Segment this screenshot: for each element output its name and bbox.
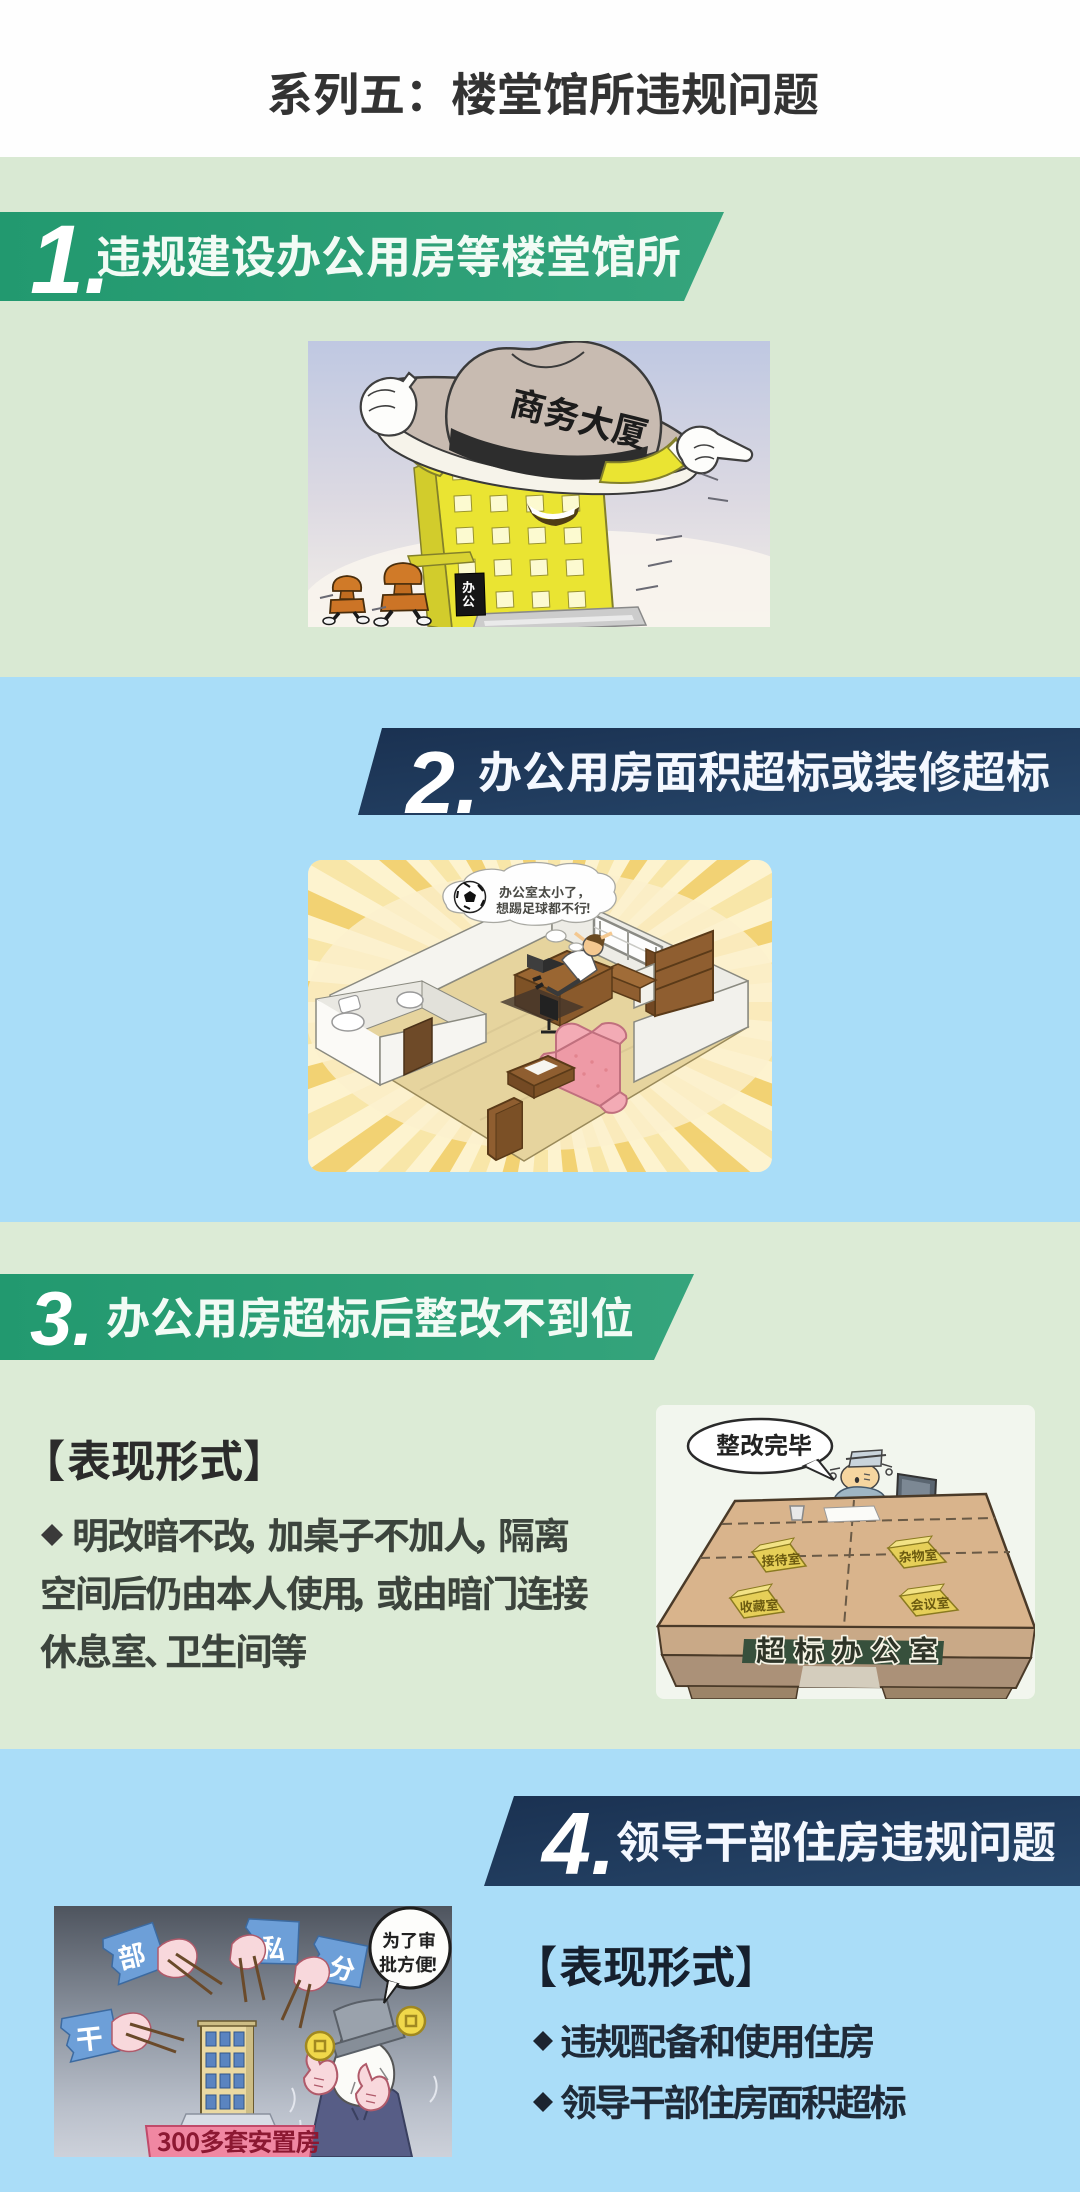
svg-text:1.: 1. <box>30 205 111 314</box>
svg-text:3.: 3. <box>30 1277 93 1362</box>
svg-text:2.: 2. <box>404 733 479 832</box>
svg-text:4.: 4. <box>540 1794 615 1893</box>
